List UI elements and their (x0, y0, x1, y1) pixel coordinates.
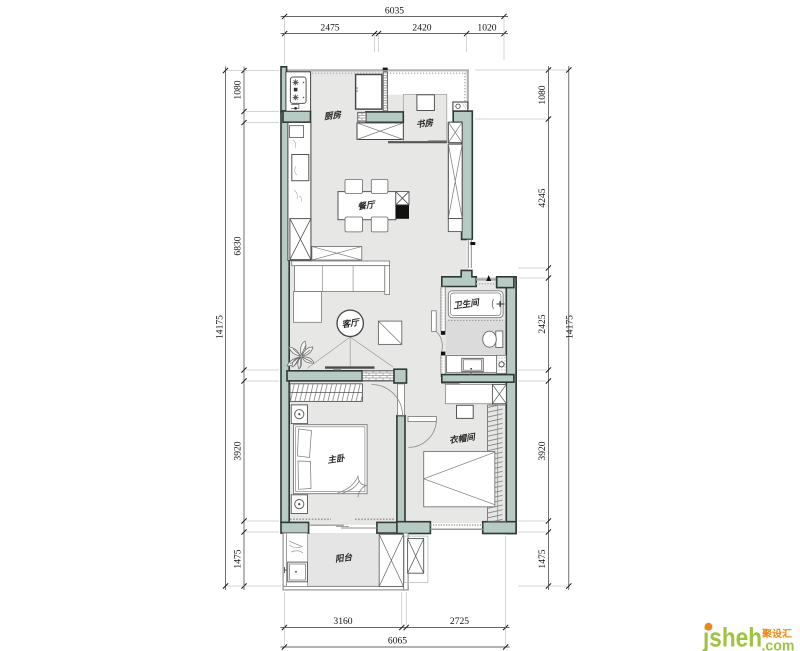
svg-text:4245: 4245 (537, 188, 548, 207)
svg-text:3920: 3920 (233, 441, 244, 460)
svg-text:1475: 1475 (537, 549, 548, 568)
svg-text:1080: 1080 (233, 80, 244, 99)
svg-text:1080: 1080 (537, 85, 548, 104)
svg-text:1475: 1475 (233, 549, 244, 568)
svg-text:6035: 6035 (385, 6, 404, 17)
svg-text:2725: 2725 (450, 616, 469, 627)
svg-text:6830: 6830 (233, 236, 244, 255)
svg-text:2425: 2425 (537, 314, 548, 333)
svg-text:14175: 14175 (215, 315, 226, 339)
svg-text:3920: 3920 (537, 441, 548, 460)
svg-text:.com: .com (762, 639, 795, 651)
svg-text:2420: 2420 (412, 23, 431, 34)
svg-text:3160: 3160 (333, 616, 352, 627)
svg-text:1020: 1020 (477, 23, 496, 34)
svg-text:2475: 2475 (320, 23, 339, 34)
svg-text:6065: 6065 (388, 636, 407, 647)
svg-text:14175: 14175 (565, 315, 576, 339)
